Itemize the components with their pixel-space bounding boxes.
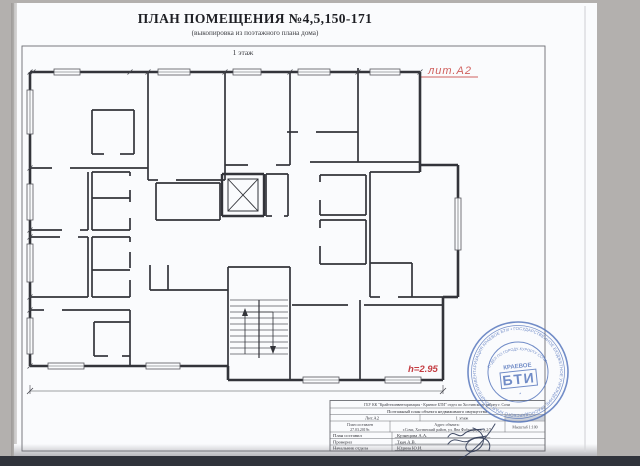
tb-made-label: План составлен xyxy=(347,423,373,427)
tb-row2-label: Проверил xyxy=(333,439,353,444)
tb-floor: 1 этаж xyxy=(456,415,470,420)
liter-label: лит.А2 xyxy=(427,65,472,77)
plan-title: ПЛАН ПОМЕЩЕНИЯ №4,5,150-171 xyxy=(138,11,373,26)
ceiling-height-label: h=2.95 xyxy=(408,364,439,375)
tb-scale: Масштаб 1:100 xyxy=(512,426,537,430)
floorplan-svg: ПЛАН ПОМЕЩЕНИЯ №4,5,150-171 (выкопировка… xyxy=(0,0,640,466)
paper-left-edge xyxy=(11,3,17,456)
tb-row2-name: Ткач А.В. xyxy=(397,439,416,444)
photo-bottom-band xyxy=(0,456,640,466)
stamp-center-main: БТИ xyxy=(502,369,536,388)
scanned-floorplan-photo: ПЛАН ПОМЕЩЕНИЯ №4,5,150-171 (выкопировка… xyxy=(0,0,640,466)
tb-row1-name: Кузнецова А.А. xyxy=(397,433,427,438)
tb-row3-label: Начальник отдела xyxy=(333,446,368,451)
tb-doc-type: Поэтажный план объекта недвижимого имуще… xyxy=(387,409,487,414)
tb-row3-name: Юдина Ю.И. xyxy=(397,446,422,451)
tb-address-label: Адрес объекта: xyxy=(434,423,459,427)
plan-subtitle: (выкопировка из поэтажного плана дома) xyxy=(192,29,319,37)
floor-label: 1 этаж xyxy=(233,48,255,57)
tb-row1-label: План составил xyxy=(333,433,362,438)
tb-made-date: 27.03.2019г. xyxy=(350,428,370,432)
tb-liter: Лит.А2 xyxy=(365,415,380,420)
paper-bottom-shadow xyxy=(14,444,597,456)
